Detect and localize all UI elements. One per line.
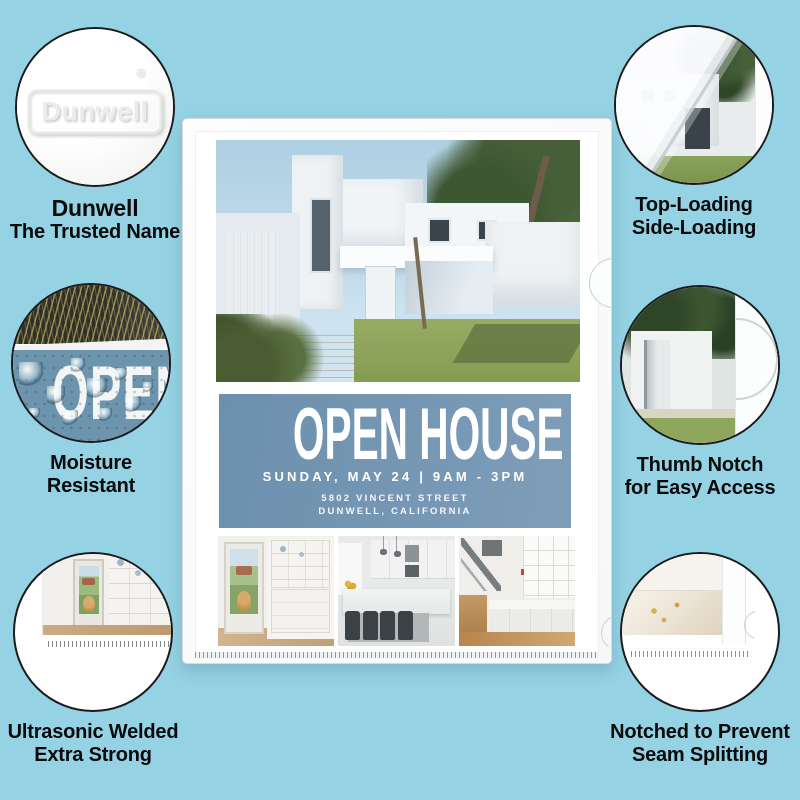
welded-seam-stitching [195,652,599,658]
blue-dish [117,559,124,566]
callout-brand: Dunwell ® Dunwell The Trusted Name [0,27,205,244]
pendant-stem [383,536,384,550]
lower-cabinets [489,609,575,634]
callout-line2: The Trusted Name [0,221,205,244]
dunwell-logo: Dunwell [27,89,162,134]
tall-window [310,198,331,273]
counter-items [622,554,722,635]
water-droplets [13,350,169,441]
welded-seam-stitching [48,641,171,647]
hutch-drawers [271,589,330,633]
door-glass [79,566,99,614]
thumb-notch-circle [620,285,780,445]
flyer-blue-area: OPEN [13,350,169,441]
loading-circle [614,25,774,185]
small-window [428,218,452,242]
stair-landing [482,540,502,555]
bar-stool [363,611,378,641]
flyer-address: 5802 VINCENT STREET DUNWELL, CALIFORNIA [219,492,571,518]
callout-line1: Ultrasonic Welded [0,721,203,744]
blue-dish [280,546,286,552]
house-tower [292,155,343,310]
interior-closeup-photo [42,554,171,635]
pendant-light [380,549,387,555]
callout-line2: for Easy Access [590,477,800,500]
callout-label: Top-Loading Side-Loading [584,194,800,239]
wood-floor [43,625,171,636]
dunwell-logo-text: Dunwell [41,96,148,126]
china-hutch [267,538,334,639]
callout-line1: Top-Loading [584,194,800,217]
callout-moisture: OPEN Moisture Resistant [0,283,201,497]
callout-label: Ultrasonic Welded Extra Strong [0,721,203,766]
roof-through-glass [236,566,252,574]
brand-circle: Dunwell ® [15,27,175,187]
page: { "colors": { "page_background": "#95d2e… [0,0,800,800]
callout-ultrasonic: Ultrasonic Welded Extra Strong [0,552,203,766]
moisture-circle: OPEN [11,283,171,443]
registered-mark: ® [136,66,145,80]
roof-through-glass [82,578,95,585]
plastic-fold-overlay [616,27,772,183]
lawn [622,418,741,443]
hutch-shelves [271,540,330,588]
welded-seam-stitching [631,651,750,657]
pendant-light [394,551,401,557]
callout-line1: Moisture [0,452,201,475]
bar-stool [345,611,360,641]
notch-closeup-photo [622,287,778,443]
callout-label: Thumb Notch for Easy Access [590,454,800,499]
callout-label: Notched to Prevent Seam Splitting [590,721,800,766]
lawn-shadow [452,324,580,363]
thumb-notch-arc [735,318,778,400]
flyer-address-line2: DUNWELL, CALIFORNIA [219,505,571,518]
callout-line1: Thumb Notch [590,454,800,477]
callout-line2: Extra Strong [0,744,203,767]
callout-notched: Notched to Prevent Seam Splitting [590,552,800,766]
notched-circle [620,552,780,712]
bright-windows [523,536,575,598]
house-photo [216,140,580,382]
wood-floor [459,595,487,635]
dog [83,596,94,612]
corner-photo [622,554,722,635]
wood-floor [459,632,575,646]
callout-line1: Dunwell [0,196,205,221]
kitchen-island [343,589,450,614]
seam-notch [742,610,755,638]
glass-door [73,559,104,631]
folder-edge-strip [735,287,778,443]
grass-gravel-photo [13,285,169,344]
blue-dish [299,552,304,557]
range-hood [405,545,419,563]
interior-photo-door-dog [218,536,334,646]
range [405,565,419,577]
callout-label: Dunwell The Trusted Name [0,196,205,244]
callout-line2: Seam Splitting [590,744,800,767]
door-glass [230,549,257,614]
path [622,409,741,418]
callout-thumb-notch: Thumb Notch for Easy Access [590,285,800,499]
house-right-wing [485,222,580,304]
callout-line1: Notched to Prevent [590,721,800,744]
flyer-address-line1: 5802 VINCENT STREET [219,492,571,505]
interior-photo-kitchen-stairs [459,536,575,646]
callout-label: Moisture Resistant [0,452,201,497]
interior-photo-kitchen-island [338,536,454,646]
callout-line2: Resistant [0,475,201,498]
flyer-paper: OPEN HOUSE SUNDAY, MAY 24 | 9AM - 3PM 58… [195,131,599,653]
bar-stool [380,611,395,641]
clear-plastic-folder: OPEN HOUSE SUNDAY, MAY 24 | 9AM - 3PM 58… [182,118,612,664]
shrubs [216,314,332,382]
interior-photos-row [218,536,575,646]
open-door [644,340,670,412]
seam-notch-arc [744,611,755,638]
callout-loading: Top-Loading Side-Loading [584,25,800,239]
pendant-stem [396,536,397,553]
flyer-text-block: OPEN HOUSE SUNDAY, MAY 24 | 9AM - 3PM 58… [219,394,571,528]
red-object [521,569,524,575]
dog [237,591,251,611]
flyer-title: OPEN HOUSE [293,405,497,464]
ultrasonic-circle [13,552,173,712]
glass-door [224,542,264,634]
bar-stool [398,611,413,641]
callout-line2: Side-Loading [584,217,800,240]
